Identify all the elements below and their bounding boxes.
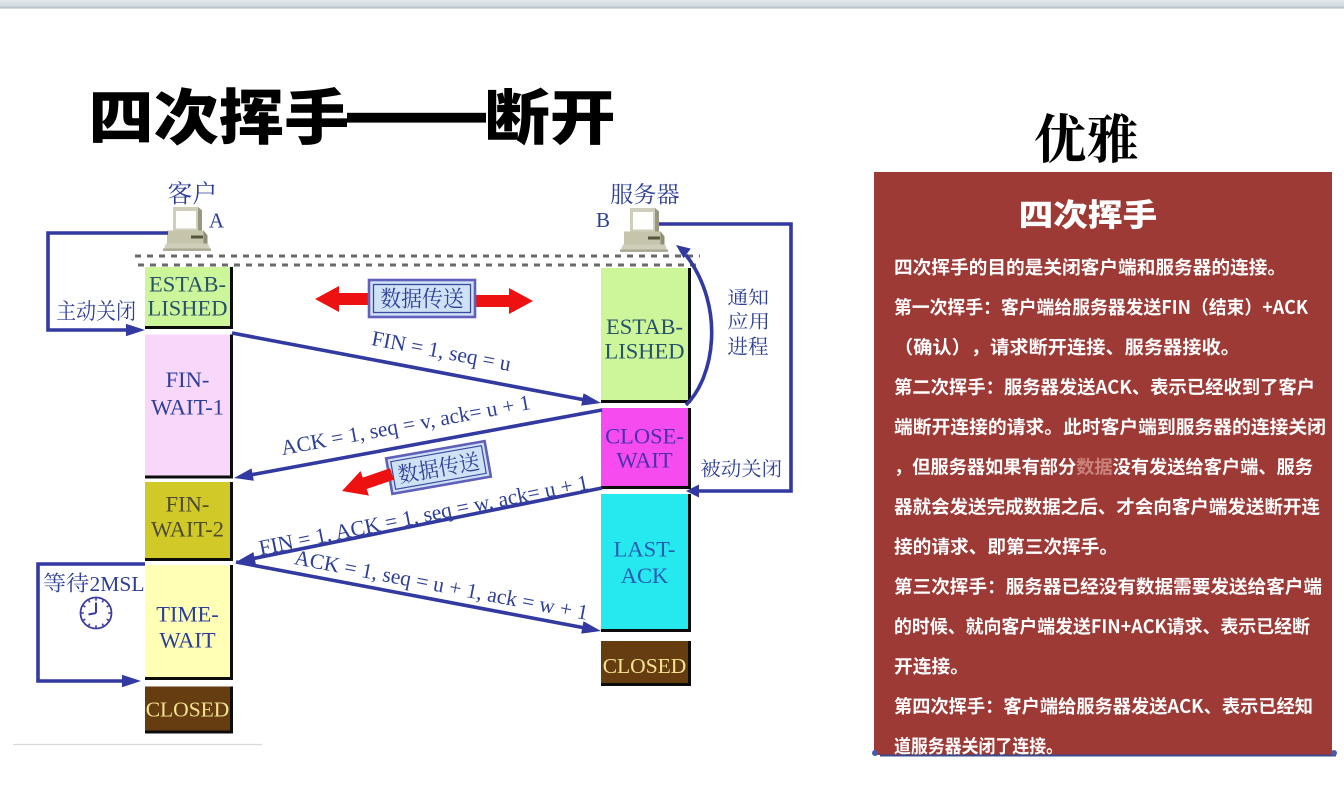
svg-text:ACK: ACK bbox=[621, 563, 669, 588]
svg-text:WAIT-1: WAIT-1 bbox=[151, 395, 224, 420]
svg-text:WAIT: WAIT bbox=[159, 628, 215, 653]
svg-text:CLOSE-: CLOSE- bbox=[605, 424, 684, 449]
svg-text:A: A bbox=[209, 209, 225, 233]
svg-text:2MSL: 2MSL bbox=[90, 572, 145, 596]
svg-text:TIME-: TIME- bbox=[156, 602, 218, 627]
svg-text:WAIT-2: WAIT-2 bbox=[151, 517, 224, 542]
svg-text:CLOSED: CLOSED bbox=[603, 654, 687, 678]
svg-text:ACK = 1, seq = u + 1, ack = w: ACK = 1, seq = u + 1, ack = w + 1 bbox=[293, 545, 591, 624]
svg-text:WAIT: WAIT bbox=[616, 448, 672, 473]
svg-text:FIN = 1, seq = u: FIN = 1, seq = u bbox=[370, 326, 514, 376]
svg-text:LISHED: LISHED bbox=[148, 296, 228, 321]
svg-text:CLOSED: CLOSED bbox=[146, 698, 230, 722]
svg-text:B: B bbox=[596, 208, 610, 232]
svg-text:LISHED: LISHED bbox=[605, 339, 685, 364]
svg-text:ESTAB-: ESTAB- bbox=[149, 272, 226, 297]
svg-text:FIN-: FIN- bbox=[166, 367, 210, 392]
svg-text:ACK = 1, seq = v, ack= u + 1: ACK = 1, seq = v, ack= u + 1 bbox=[279, 390, 532, 460]
svg-text:ESTAB-: ESTAB- bbox=[606, 314, 683, 339]
svg-text:FIN-: FIN- bbox=[166, 492, 210, 517]
svg-text:LAST-: LAST- bbox=[614, 537, 676, 562]
